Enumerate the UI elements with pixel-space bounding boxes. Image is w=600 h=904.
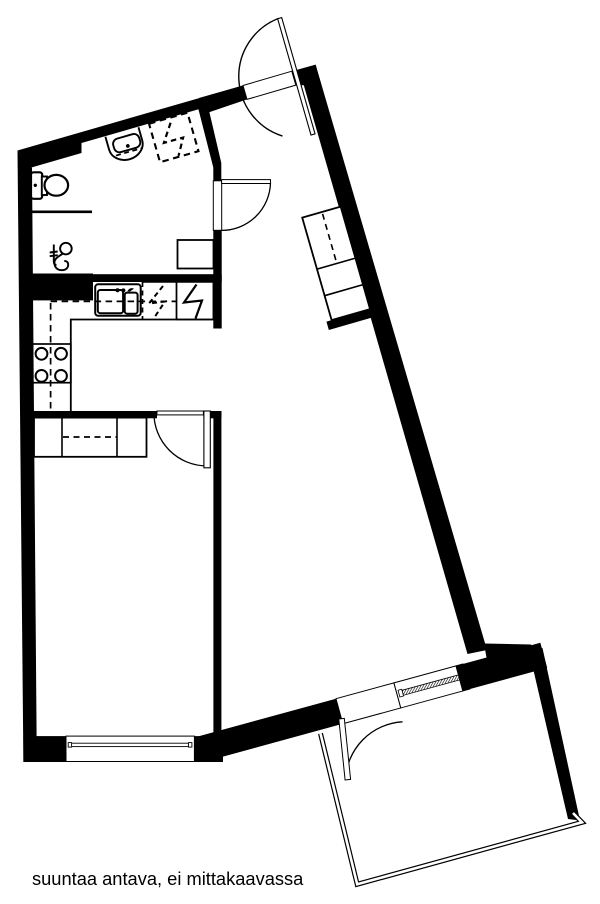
svg-text:suuntaa antava, ei mittakaavas: suuntaa antava, ei mittakaavassa: [32, 868, 304, 889]
